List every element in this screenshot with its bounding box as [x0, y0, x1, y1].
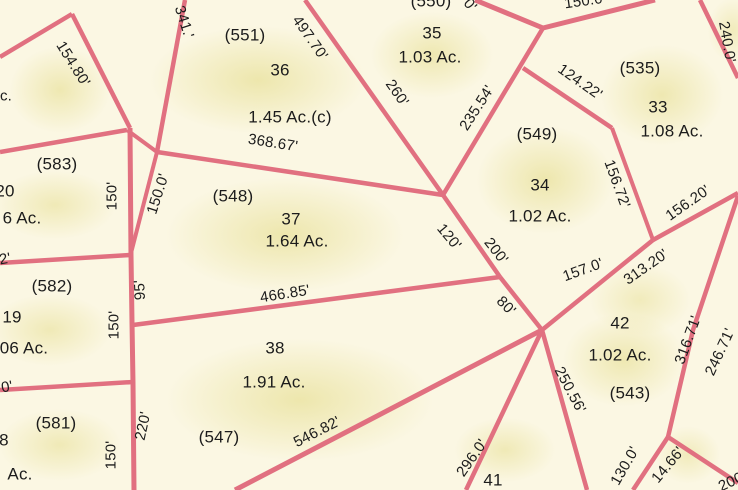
lot-number-label: 36 [270, 62, 289, 79]
parcel-id-label: (543) [610, 385, 651, 402]
lot-number-label: 33 [648, 99, 667, 116]
parcel-boundary-line [157, 152, 443, 195]
acreage-label: 1.02 Ac. [508, 208, 571, 225]
acreage-label: Ac. [7, 466, 32, 483]
parcel-boundary-line [0, 130, 127, 152]
dimension-label: 150' [107, 311, 122, 340]
lot-number-label: 41 [483, 472, 502, 489]
parcel-boundary-line [0, 382, 133, 390]
text-fragment-label: c. [0, 89, 12, 104]
lot-number-label: 35 [422, 25, 441, 42]
acreage-label: 1.91 Ac. [242, 374, 305, 391]
parcel-boundary-line [133, 277, 500, 325]
parcel-boundary-line [466, 330, 542, 490]
acreage-label: 1.08 Ac. [640, 123, 703, 140]
parcel-boundary-line [0, 255, 130, 263]
acreage-label: 1.03 Ac. [398, 49, 461, 66]
parcel-id-label: (583) [37, 156, 78, 173]
parcel-id-label: (550) [411, 0, 452, 10]
parcel-id-label: (551) [225, 27, 266, 44]
lot-number-label: 8 [0, 432, 9, 449]
lot-number-label: 42 [610, 315, 629, 332]
lot-number-label: 37 [281, 211, 300, 228]
acreage-label: 1.02 Ac. [588, 347, 651, 364]
parcel-id-label: (549) [517, 126, 558, 143]
parcel-id-label: (548) [213, 188, 254, 205]
parcel-boundary-line [668, 196, 738, 437]
parcel-map[interactable]: (551)361.45 Ac.(c)(550)351.03 Ac.(535)33… [0, 0, 738, 490]
acreage-label: 6 Ac. [3, 210, 42, 227]
parcel-boundary-line [475, 0, 543, 28]
dimension-label: 95' [132, 280, 148, 301]
lot-number-label: 38 [265, 340, 284, 357]
dimension-label: 0' [0, 379, 14, 396]
dimension-label: 150' [105, 182, 120, 211]
acreage-label: 1.45 Ac.(c) [248, 109, 331, 126]
parcel-boundary-line [542, 240, 653, 330]
parcel-id-label: (535) [620, 60, 661, 77]
parcel-id-label: (582) [32, 278, 73, 295]
acreage-label: 06 Ac. [0, 340, 48, 357]
lot-number-label: 34 [530, 177, 549, 194]
dimension-label: 150' [104, 441, 119, 470]
parcel-id-label: (581) [36, 415, 77, 432]
acreage-label: 1.64 Ac. [265, 233, 328, 250]
lot-number-label: 19 [2, 309, 21, 326]
lot-number-label: 20 [0, 183, 15, 200]
parcel-id-label: (547) [199, 429, 240, 446]
